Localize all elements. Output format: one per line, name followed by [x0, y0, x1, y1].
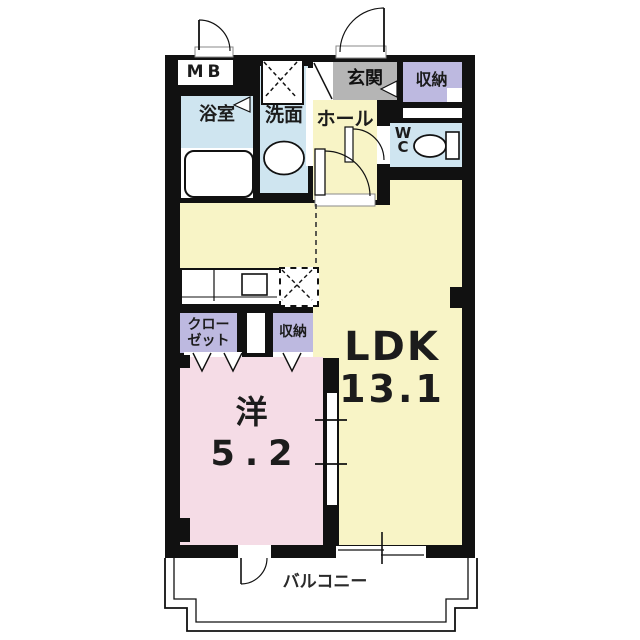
storage-mid-label: 収納 — [273, 325, 313, 340]
washroom-label: 洗面 — [258, 106, 310, 126]
bathroom-label: 浴室 — [181, 106, 253, 125]
washing-machine-space-icon — [261, 59, 304, 105]
balcony-label: バルコニー — [245, 574, 405, 592]
bathtub-icon — [184, 150, 254, 198]
closet-label: クロー ゼット — [180, 317, 237, 349]
refrigerator-space-icon — [279, 267, 319, 307]
ldk-name: LDK — [328, 326, 456, 368]
closet-label-line2: ゼット — [180, 333, 237, 349]
storage-shelf-bar — [403, 108, 462, 118]
wall-pillar-right — [450, 287, 462, 308]
western-label: 洋 5.2 — [180, 396, 323, 472]
mb-label: MB — [178, 60, 233, 85]
wc-label: W C — [393, 126, 413, 154]
entrance-step — [313, 62, 333, 100]
wall-bump-left-bottom — [178, 518, 190, 542]
wall-bump-left-top — [178, 355, 190, 368]
mb-door-icon — [195, 20, 233, 57]
western-area: 5.2 — [180, 436, 323, 473]
storage-top-label: 収納 — [403, 72, 460, 89]
floor-plan-canvas: MB 浴室 洗面 玄関 収納 ホール W C LDK 13.1 クロー ゼット … — [0, 0, 640, 640]
ldk-label: LDK 13.1 — [328, 326, 456, 410]
closet-label-line1: クロー — [180, 317, 237, 333]
storage-top-notch — [447, 88, 462, 102]
entrance-door-icon — [336, 8, 386, 58]
wc-label-line2: C — [393, 140, 413, 154]
balcony-outline — [165, 558, 477, 631]
western-name: 洋 — [180, 396, 323, 430]
hall-label: ホール — [313, 110, 377, 130]
ldk-area: 13.1 — [328, 370, 456, 410]
entrance-label: 玄関 — [333, 70, 397, 89]
kitchen-counter-icon — [180, 268, 281, 306]
closet-gap — [247, 313, 265, 353]
